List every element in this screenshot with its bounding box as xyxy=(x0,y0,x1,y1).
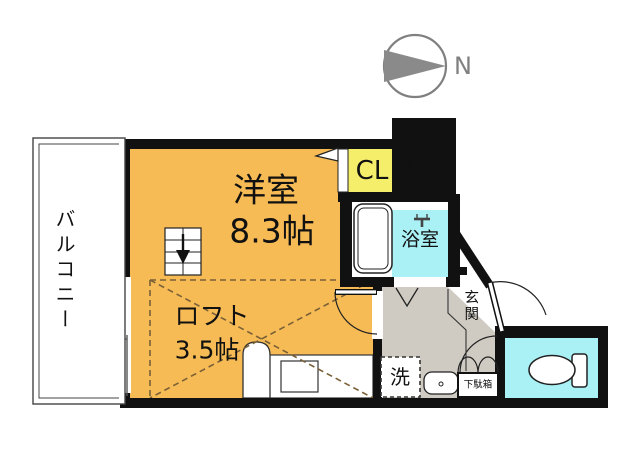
entrance-door xyxy=(489,282,546,331)
label-pipe-space: PS xyxy=(406,145,441,173)
floor-plan: バルコニー 洋室 8.3帖 ロフト 3.5帖 CL PS 浴室 玄関 洗 下駄箱… xyxy=(0,0,640,455)
bath-door-opening xyxy=(394,277,446,287)
label-balcony: バルコニー xyxy=(54,209,74,334)
label-main-room-size: 8.3帖 xyxy=(229,215,314,248)
bathtub xyxy=(354,204,392,273)
balcony-rail xyxy=(33,138,125,404)
loft-ladder-icon xyxy=(165,228,201,275)
label-closet: CL xyxy=(356,158,389,184)
label-shoe-cabinet: 下駄箱 xyxy=(464,380,493,390)
label-entrance: 玄関 xyxy=(463,290,478,323)
room-door-opening xyxy=(372,291,383,339)
label-loft-name: ロフト xyxy=(174,304,249,329)
floor-plan-graphics xyxy=(0,0,640,455)
kitchen-unit xyxy=(243,342,270,398)
label-bathroom: 浴室 xyxy=(401,231,439,250)
label-main-room-name: 洋室 xyxy=(233,174,299,207)
washbasin xyxy=(424,372,458,394)
compass-icon xyxy=(384,35,446,97)
compass-needle-icon xyxy=(384,50,446,82)
label-loft-size: 3.5帖 xyxy=(175,338,240,363)
label-washer: 洗 xyxy=(390,367,410,387)
label-compass-north: N xyxy=(454,54,472,78)
toilet-icon xyxy=(529,354,587,387)
